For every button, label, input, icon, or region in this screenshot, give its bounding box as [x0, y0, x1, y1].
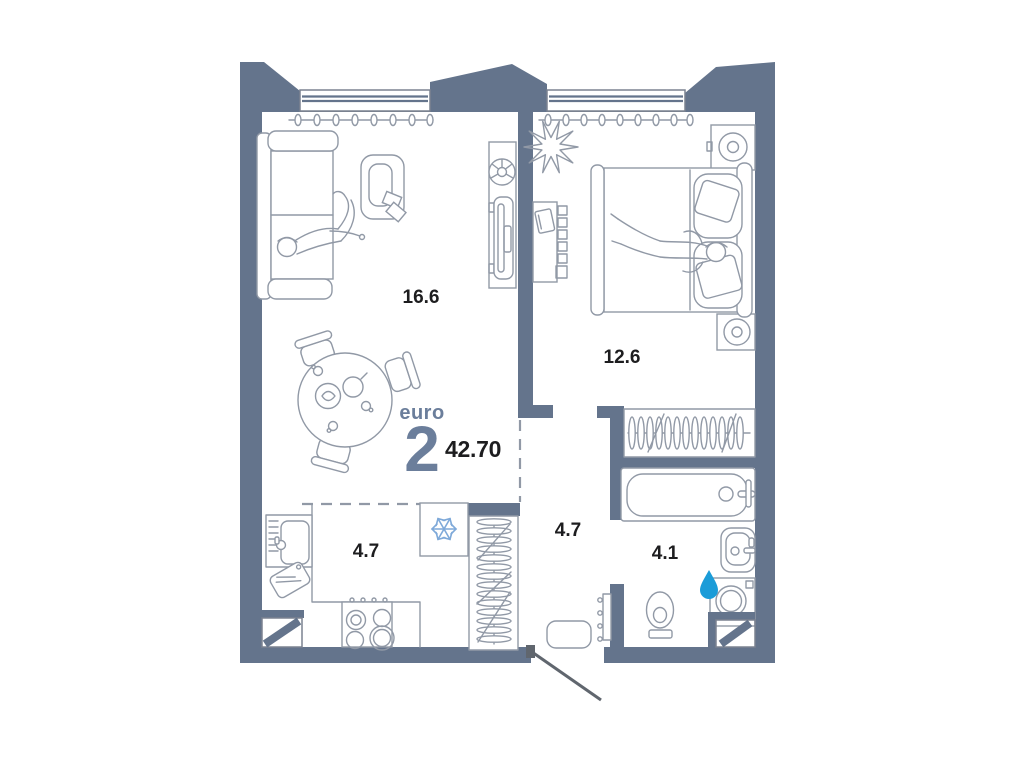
- shaft-bottom-left: [262, 610, 304, 647]
- window-bedroom: [547, 90, 685, 111]
- bed: [591, 163, 752, 317]
- curtain-bedroom: [539, 115, 693, 126]
- doormat: [547, 621, 591, 648]
- entry-door: [526, 645, 601, 700]
- sofa: [257, 131, 338, 299]
- floor-plan: 16.6 12.6 4.7 4.7 4.1 euro 2 42.70: [0, 0, 1024, 768]
- window-living: [300, 90, 430, 111]
- kitchen-area-label: 4.7: [353, 541, 379, 562]
- water-drop-icon: [700, 570, 718, 599]
- bathtub: [621, 468, 755, 521]
- bathroom-sink: [721, 528, 755, 572]
- apartment-type-badge: euro 2 42.70: [399, 402, 501, 485]
- bathroom-area-label: 4.1: [652, 543, 679, 564]
- desk: [533, 202, 567, 282]
- dining-table: [298, 353, 392, 447]
- total-area-label: 42.70: [445, 436, 501, 462]
- living-room-area-label: 16.6: [403, 287, 440, 308]
- rooms-count-label: 2: [404, 413, 440, 485]
- floor-plan-page: 16.6 12.6 4.7 4.7 4.1 euro 2 42.70: [0, 0, 1024, 768]
- kitchen-sink: [266, 515, 312, 567]
- towel-radiator: [598, 594, 611, 641]
- curtain-living: [289, 115, 433, 126]
- hall-closet: [469, 516, 518, 650]
- shaft-bottom-right: [708, 612, 755, 647]
- toilet: [647, 592, 674, 638]
- hallway-area-label: 4.7: [555, 520, 581, 541]
- soccer-ball-icon: [489, 159, 515, 185]
- coffee-table: [361, 155, 406, 222]
- nightstand-bottom: [717, 314, 755, 350]
- wardrobe-bedroom: [624, 409, 755, 457]
- stove: [342, 598, 394, 650]
- bedroom-area-label: 12.6: [604, 347, 641, 368]
- fridge: [420, 503, 468, 556]
